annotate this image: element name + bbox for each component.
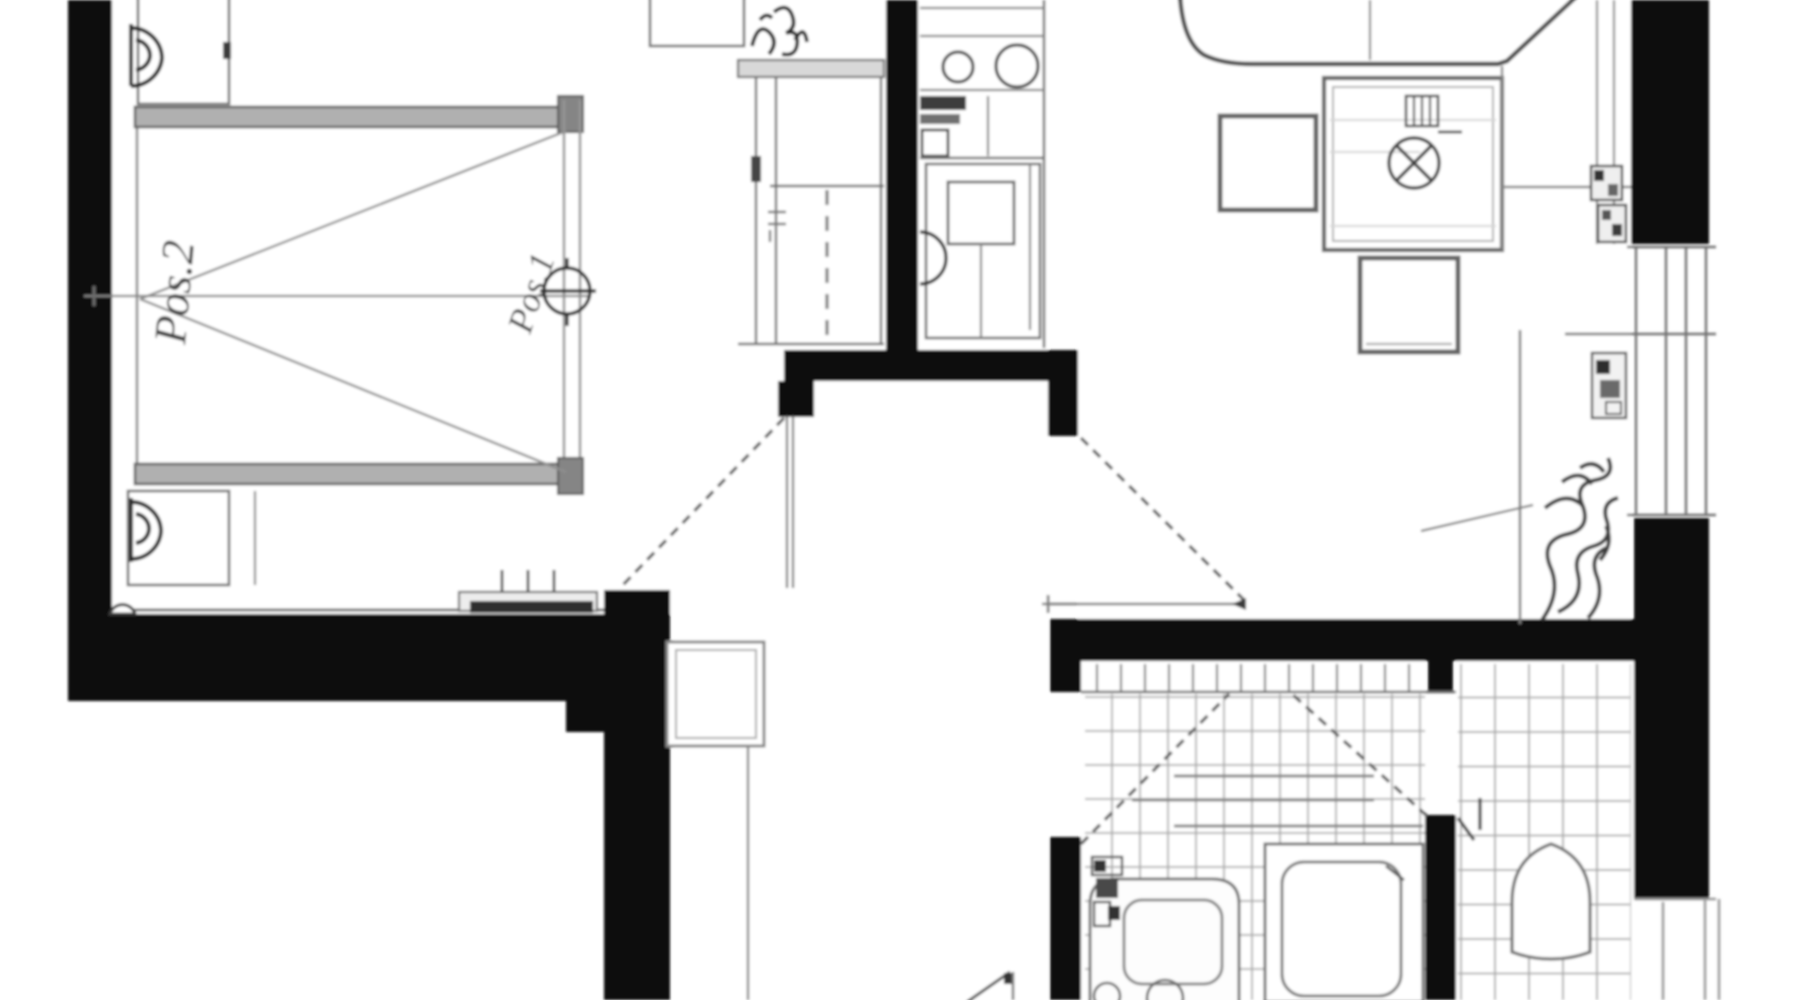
svg-text:Pos.2: Pos.2: [144, 238, 204, 347]
